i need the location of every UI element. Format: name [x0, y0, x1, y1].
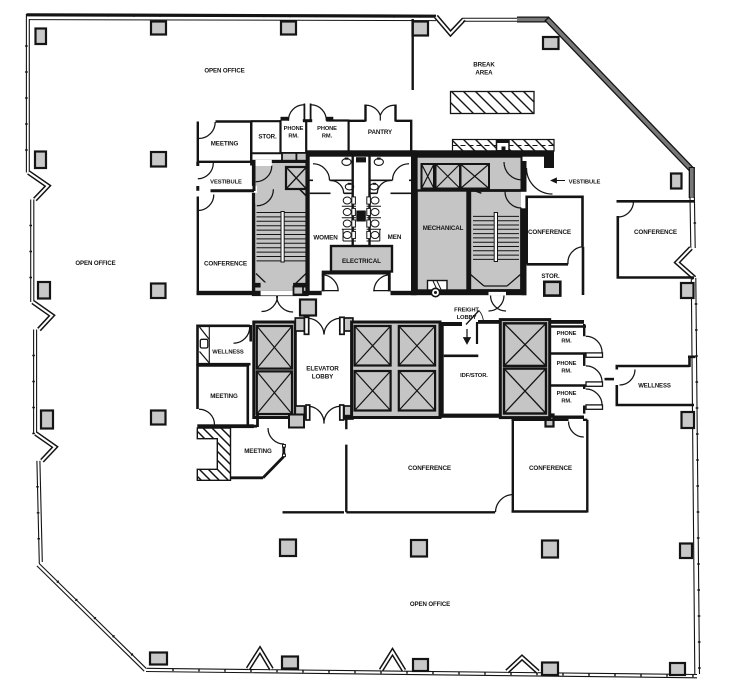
svg-text:MEETING: MEETING [210, 393, 238, 400]
svg-text:MEN: MEN [388, 234, 402, 241]
svg-text:CONFERENCE: CONFERENCE [529, 465, 572, 472]
svg-text:MEETING: MEETING [244, 448, 272, 455]
svg-text:STOR.: STOR. [258, 133, 277, 140]
svg-text:ELECTRICAL: ELECTRICAL [342, 258, 381, 265]
svg-text:PHONE: PHONE [284, 126, 304, 132]
svg-text:CONFERENCE: CONFERENCE [634, 229, 677, 236]
svg-text:RM.: RM. [288, 133, 299, 139]
svg-text:RM.: RM. [561, 368, 572, 374]
svg-text:WELLNESS: WELLNESS [212, 349, 244, 355]
svg-text:RM.: RM. [561, 398, 572, 404]
svg-text:MECHANICAL: MECHANICAL [423, 225, 464, 232]
svg-text:OPEN OFFICE: OPEN OFFICE [75, 260, 115, 267]
svg-text:MEETING: MEETING [211, 140, 239, 147]
svg-text:PHONE: PHONE [557, 361, 577, 367]
svg-text:RM.: RM. [322, 133, 333, 139]
svg-text:VESTIBULE: VESTIBULE [569, 179, 601, 185]
svg-text:RM.: RM. [561, 338, 572, 344]
svg-text:PANTRY: PANTRY [368, 129, 393, 136]
svg-text:OPEN OFFICE: OPEN OFFICE [204, 68, 244, 75]
svg-text:FREIGHT: FREIGHT [454, 307, 479, 313]
svg-text:LOBBY: LOBBY [312, 374, 334, 381]
svg-text:PHONE: PHONE [317, 126, 337, 132]
svg-text:LOBBY: LOBBY [457, 315, 477, 321]
svg-text:BREAK: BREAK [473, 62, 495, 69]
svg-text:PHONE: PHONE [557, 331, 577, 337]
svg-text:PHONE: PHONE [557, 391, 577, 397]
svg-text:CONFERENCE: CONFERENCE [528, 229, 571, 236]
svg-text:WOMEN: WOMEN [313, 234, 338, 241]
svg-text:WELLNESS: WELLNESS [638, 383, 671, 389]
svg-text:CONFERENCE: CONFERENCE [408, 465, 451, 472]
svg-text:ELEVATOR: ELEVATOR [306, 366, 339, 373]
svg-text:OPEN OFFICE: OPEN OFFICE [410, 601, 450, 608]
svg-text:STOR.: STOR. [541, 273, 560, 280]
svg-text:VESTIBULE: VESTIBULE [210, 179, 242, 185]
svg-text:CONFERENCE: CONFERENCE [204, 260, 247, 267]
svg-text:IDF/STOR.: IDF/STOR. [460, 373, 488, 379]
svg-text:AREA: AREA [475, 70, 493, 77]
